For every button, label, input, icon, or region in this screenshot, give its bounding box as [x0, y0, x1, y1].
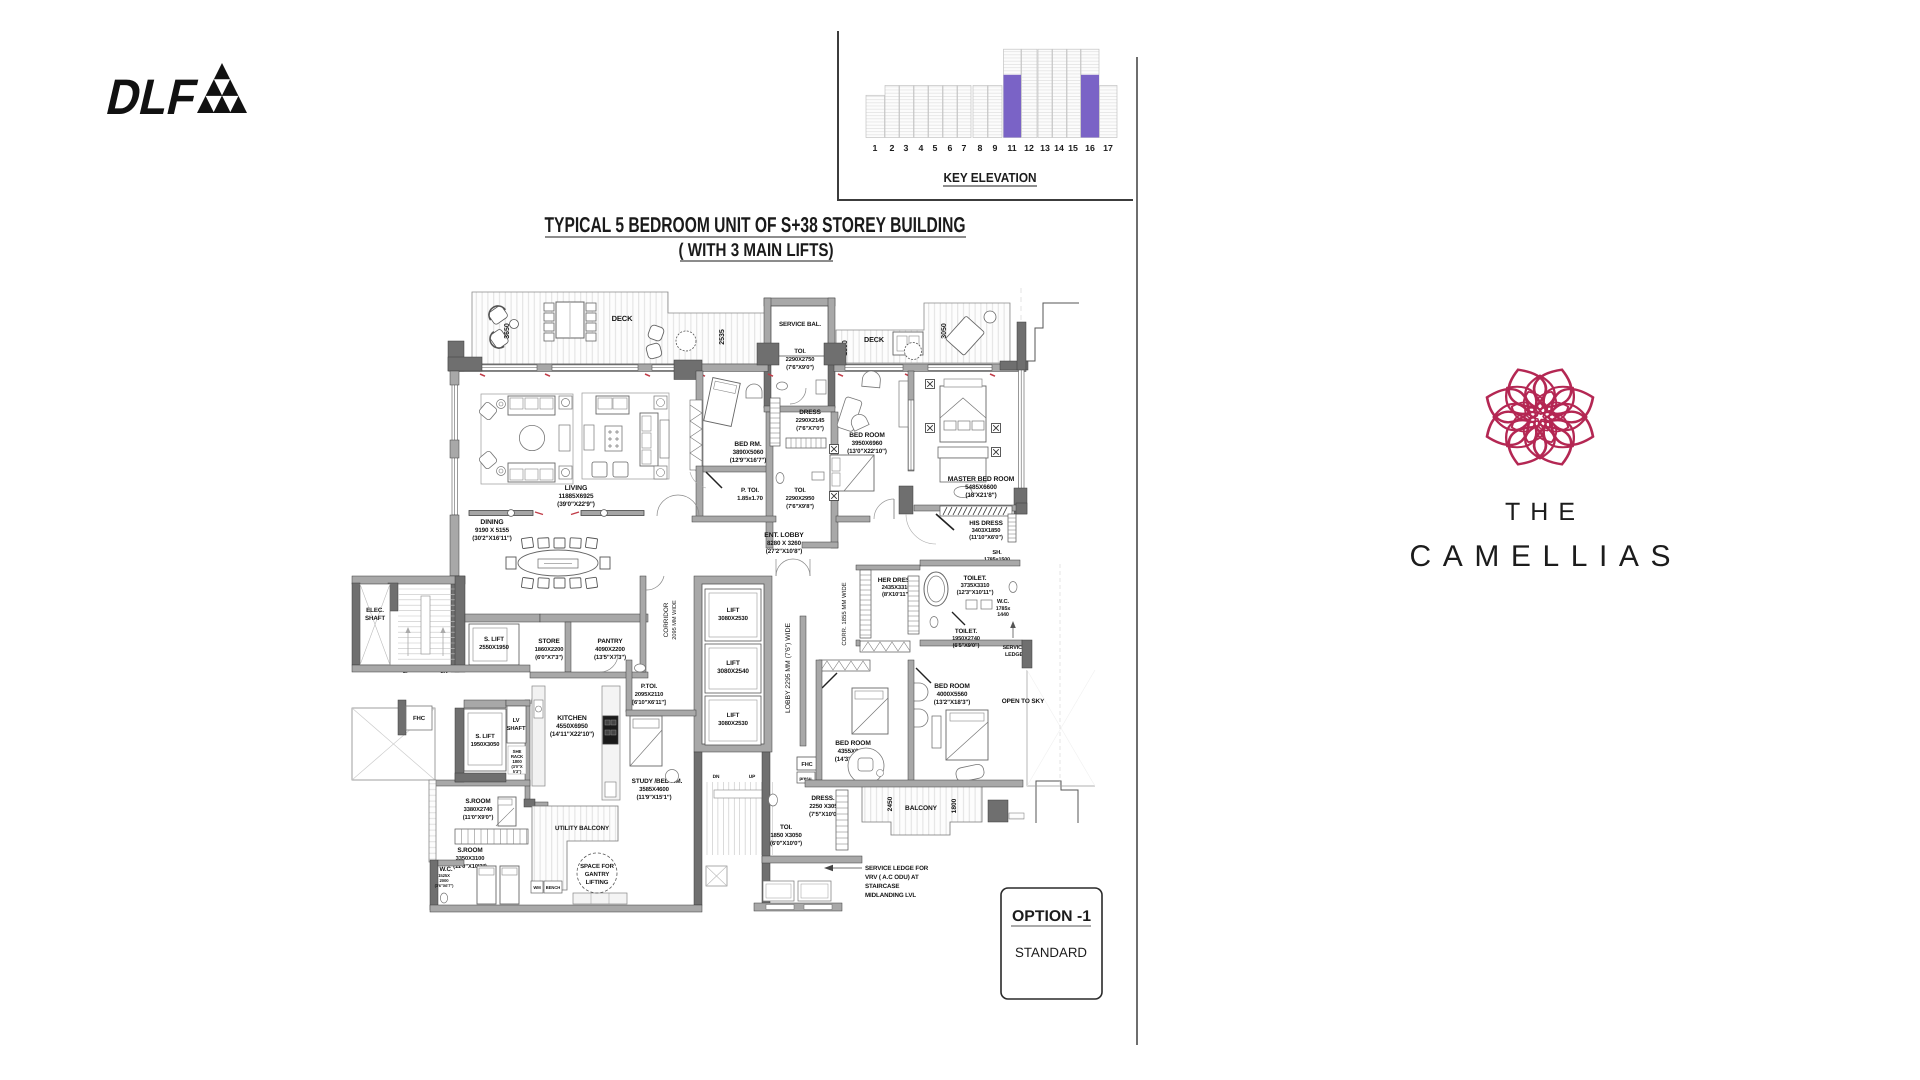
- svg-text:(6'0"X7'3"): (6'0"X7'3"): [535, 654, 563, 661]
- svg-text:(3'6"X6'7"): (3'6"X6'7"): [435, 883, 455, 888]
- svg-text:1.85x1.70: 1.85x1.70: [737, 495, 764, 502]
- svg-text:2095 MM WIDE: 2095 MM WIDE: [672, 600, 678, 640]
- svg-text:11: 11: [1007, 143, 1016, 153]
- svg-text:SHAFT: SHAFT: [507, 725, 526, 732]
- svg-text:ENT. LOBBY: ENT. LOBBY: [764, 532, 804, 539]
- svg-text:P. TOI.: P. TOI.: [741, 487, 759, 494]
- svg-text:S.ROOM: S.ROOM: [457, 847, 482, 854]
- svg-text:3080X2530: 3080X2530: [718, 615, 749, 622]
- svg-text:FHC: FHC: [413, 715, 426, 722]
- svg-text:(12'9"X16'7"): (12'9"X16'7"): [730, 457, 766, 464]
- svg-text:(13'5"X7'3"): (13'5"X7'3"): [594, 654, 626, 661]
- svg-text:DRESS: DRESS: [799, 409, 821, 416]
- svg-text:PANTRY: PANTRY: [598, 638, 624, 645]
- svg-text:3: 3: [904, 143, 909, 153]
- svg-text:(7'6"X9'0"): (7'6"X9'0"): [786, 364, 814, 371]
- svg-text:BENCH: BENCH: [546, 885, 560, 890]
- svg-text:LV: LV: [513, 718, 520, 724]
- svg-text:VRV ( A.C ODU) AT: VRV ( A.C ODU) AT: [865, 874, 919, 881]
- svg-text:FHC: FHC: [801, 762, 812, 768]
- svg-text:2290X2750: 2290X2750: [786, 356, 815, 363]
- svg-text:2550X1950: 2550X1950: [479, 644, 510, 651]
- svg-text:TOI.: TOI.: [794, 348, 806, 355]
- svg-text:DECK: DECK: [612, 314, 634, 323]
- svg-text:4090X2200: 4090X2200: [595, 646, 626, 653]
- svg-text:LEDGE: LEDGE: [1005, 652, 1024, 658]
- svg-text:W.C.: W.C.: [439, 866, 452, 873]
- svg-text:3403X1850: 3403X1850: [972, 527, 1001, 534]
- svg-text:1950X3050: 1950X3050: [471, 741, 500, 748]
- svg-text:STANDARD: STANDARD: [1015, 945, 1087, 960]
- svg-text:OPTION -1: OPTION -1: [1012, 908, 1091, 925]
- svg-text:(6'5"X9'0"): (6'5"X9'0"): [953, 642, 980, 649]
- svg-text:S. LIFT: S. LIFT: [484, 636, 504, 643]
- svg-text:(11'0"X9'0"): (11'0"X9'0"): [463, 814, 494, 821]
- svg-text:5: 5: [933, 143, 938, 153]
- svg-text:DINING: DINING: [480, 519, 503, 526]
- svg-text:LIFT: LIFT: [727, 712, 740, 719]
- svg-text:12: 12: [1024, 143, 1034, 153]
- svg-text:1440: 1440: [997, 612, 1009, 618]
- svg-text:7: 7: [962, 143, 967, 153]
- svg-text:(7'6"X7'0"): (7'6"X7'0"): [796, 425, 824, 432]
- svg-text:(7'6"X9'8"): (7'6"X9'8"): [786, 503, 814, 510]
- svg-text:3080X2540: 3080X2540: [717, 668, 749, 675]
- svg-text:TYPICAL 5 BEDROOM UNIT OF S+38: TYPICAL 5 BEDROOM UNIT OF S+38 STOREY BU…: [545, 213, 966, 237]
- svg-text:2535: 2535: [719, 329, 726, 345]
- svg-text:(6'0"X10'0"): (6'0"X10'0"): [770, 840, 802, 847]
- svg-text:KITCHEN: KITCHEN: [557, 715, 587, 722]
- svg-text:SHAFT: SHAFT: [365, 615, 385, 622]
- svg-text:OPEN TO SKY: OPEN TO SKY: [1002, 698, 1045, 705]
- svg-text:(8'X10'11"): (8'X10'11"): [882, 591, 910, 598]
- svg-text:5485X6600: 5485X6600: [965, 484, 997, 491]
- svg-text:4: 4: [919, 143, 924, 153]
- svg-text:SERVICE LEDGE FOR: SERVICE LEDGE FOR: [865, 865, 929, 872]
- svg-text:(27'2"X10'8"): (27'2"X10'8"): [766, 548, 802, 555]
- svg-text:TOI.: TOI.: [794, 487, 806, 494]
- svg-text:LIVING: LIVING: [565, 485, 588, 492]
- svg-text:DECK: DECK: [864, 335, 885, 344]
- svg-text:MIDLANDING LVL: MIDLANDING LVL: [865, 892, 916, 899]
- svg-text:GANTRY: GANTRY: [585, 871, 610, 878]
- svg-text:9: 9: [993, 143, 998, 153]
- svg-text:2435X3310: 2435X3310: [882, 584, 911, 591]
- svg-text:TOILET.: TOILET.: [964, 575, 987, 582]
- svg-text:UTILITY BALCONY: UTILITY BALCONY: [555, 825, 610, 832]
- svg-text:THE: THE: [1505, 498, 1575, 526]
- svg-text:2290X2145: 2290X2145: [796, 417, 826, 424]
- svg-text:1: 1: [873, 143, 878, 153]
- svg-text:BED RM.: BED RM.: [734, 441, 761, 448]
- svg-text:8: 8: [978, 143, 983, 153]
- svg-text:DN: DN: [713, 774, 720, 780]
- svg-text:3890X5060: 3890X5060: [733, 449, 764, 456]
- svg-text:13: 13: [1040, 143, 1050, 153]
- svg-text:(39'0"X22'9"): (39'0"X22'9"): [557, 501, 595, 508]
- svg-text:TOI.: TOI.: [780, 824, 792, 831]
- svg-text:LIFTING: LIFTING: [586, 879, 609, 886]
- svg-text:3950X6960: 3950X6960: [852, 440, 883, 447]
- svg-text:9190 X 5155: 9190 X 5155: [475, 527, 510, 534]
- svg-text:( WITH 3 MAIN LIFTS): ( WITH 3 MAIN LIFTS): [679, 239, 834, 260]
- svg-text:STAIRCASE: STAIRCASE: [865, 883, 899, 890]
- svg-text:(11'10"X6'0"): (11'10"X6'0"): [969, 534, 1003, 541]
- svg-text:1800: 1800: [951, 798, 958, 813]
- svg-text:BED ROOM: BED ROOM: [934, 683, 970, 690]
- svg-text:17: 17: [1103, 143, 1113, 153]
- svg-text:LIFT: LIFT: [726, 660, 740, 667]
- svg-text:SPACE FOR: SPACE FOR: [580, 863, 614, 870]
- svg-text:2: 2: [890, 143, 895, 153]
- svg-text:15: 15: [1068, 143, 1078, 153]
- svg-text:6: 6: [948, 143, 953, 153]
- svg-text:3050: 3050: [941, 323, 948, 339]
- svg-text:1850 X3050: 1850 X3050: [770, 832, 802, 839]
- svg-text:HIS DRESS: HIS DRESS: [969, 520, 1003, 527]
- svg-text:CORR. 1855 MM WIDE: CORR. 1855 MM WIDE: [841, 582, 848, 645]
- svg-text:(14'11"X22'10"): (14'11"X22'10"): [550, 731, 594, 738]
- svg-text:(12'3"X10'11"): (12'3"X10'11"): [957, 589, 994, 596]
- svg-text:S.ROOM: S.ROOM: [465, 798, 490, 805]
- svg-text:LIFT: LIFT: [727, 607, 740, 614]
- svg-text:(18'X21'8"): (18'X21'8"): [965, 492, 996, 499]
- svg-text:(13'2"X18'3"): (13'2"X18'3"): [934, 699, 970, 706]
- svg-text:14: 14: [1054, 143, 1064, 153]
- svg-text:(11'9"X15'1"): (11'9"X15'1"): [637, 794, 672, 801]
- svg-text:MASTER BED ROOM: MASTER BED ROOM: [948, 476, 1015, 483]
- svg-text:STORE: STORE: [538, 638, 560, 645]
- svg-text:DLF: DLF: [101, 69, 202, 125]
- svg-text:BED ROOM: BED ROOM: [835, 740, 871, 747]
- svg-text:3650: 3650: [504, 323, 511, 339]
- svg-text:2290X2950: 2290X2950: [786, 495, 815, 502]
- svg-text:LOBBY 2295 MM (7'6") WIDE: LOBBY 2295 MM (7'6") WIDE: [785, 622, 792, 713]
- svg-text:KEY ELEVATION: KEY ELEVATION: [944, 170, 1037, 185]
- svg-text:CAMELLIAS: CAMELLIAS: [1410, 540, 1671, 573]
- svg-text:3585X4600: 3585X4600: [639, 786, 670, 793]
- svg-text:DRESS.: DRESS.: [811, 795, 835, 802]
- svg-text:P.TOI.: P.TOI.: [641, 683, 658, 690]
- svg-text:S. LIFT: S. LIFT: [475, 733, 495, 740]
- svg-text:UP: UP: [749, 774, 756, 780]
- svg-text:1950X2740: 1950X2740: [952, 636, 980, 642]
- svg-text:BALCONY: BALCONY: [905, 805, 938, 812]
- svg-text:11885X6925: 11885X6925: [559, 493, 594, 500]
- svg-text:[6'10"X6'11"]: [6'10"X6'11"]: [632, 699, 666, 706]
- svg-text:SH.: SH.: [992, 549, 1002, 556]
- svg-text:(30'2"X16'11"): (30'2"X16'11"): [472, 535, 511, 542]
- svg-text:CORRIDOR: CORRIDOR: [663, 602, 670, 637]
- svg-text:W.C.: W.C.: [997, 598, 1010, 605]
- svg-text:WM: WM: [533, 885, 541, 890]
- svg-text:BED ROOM: BED ROOM: [849, 432, 885, 439]
- svg-text:1860X2200: 1860X2200: [535, 646, 564, 653]
- svg-text:3380X2740: 3380X2740: [464, 806, 493, 813]
- svg-text:SERVICE BAL.: SERVICE BAL.: [779, 321, 821, 328]
- svg-text:2450: 2450: [887, 796, 894, 811]
- svg-text:5'3"): 5'3"): [513, 769, 522, 774]
- svg-text:ELEC.: ELEC.: [366, 607, 384, 614]
- svg-text:8280 X 3260: 8280 X 3260: [767, 540, 802, 547]
- svg-text:4550X6950: 4550X6950: [556, 723, 588, 730]
- svg-text:4000X5560: 4000X5560: [937, 691, 968, 698]
- svg-text:2095X2110: 2095X2110: [635, 691, 663, 698]
- svg-text:3080X2530: 3080X2530: [718, 720, 749, 727]
- svg-text:(13'0"X22'10"): (13'0"X22'10"): [847, 448, 887, 455]
- svg-text:TOILET.: TOILET.: [955, 628, 978, 635]
- svg-text:3735X3310: 3735X3310: [961, 582, 990, 589]
- svg-text:16: 16: [1085, 143, 1095, 153]
